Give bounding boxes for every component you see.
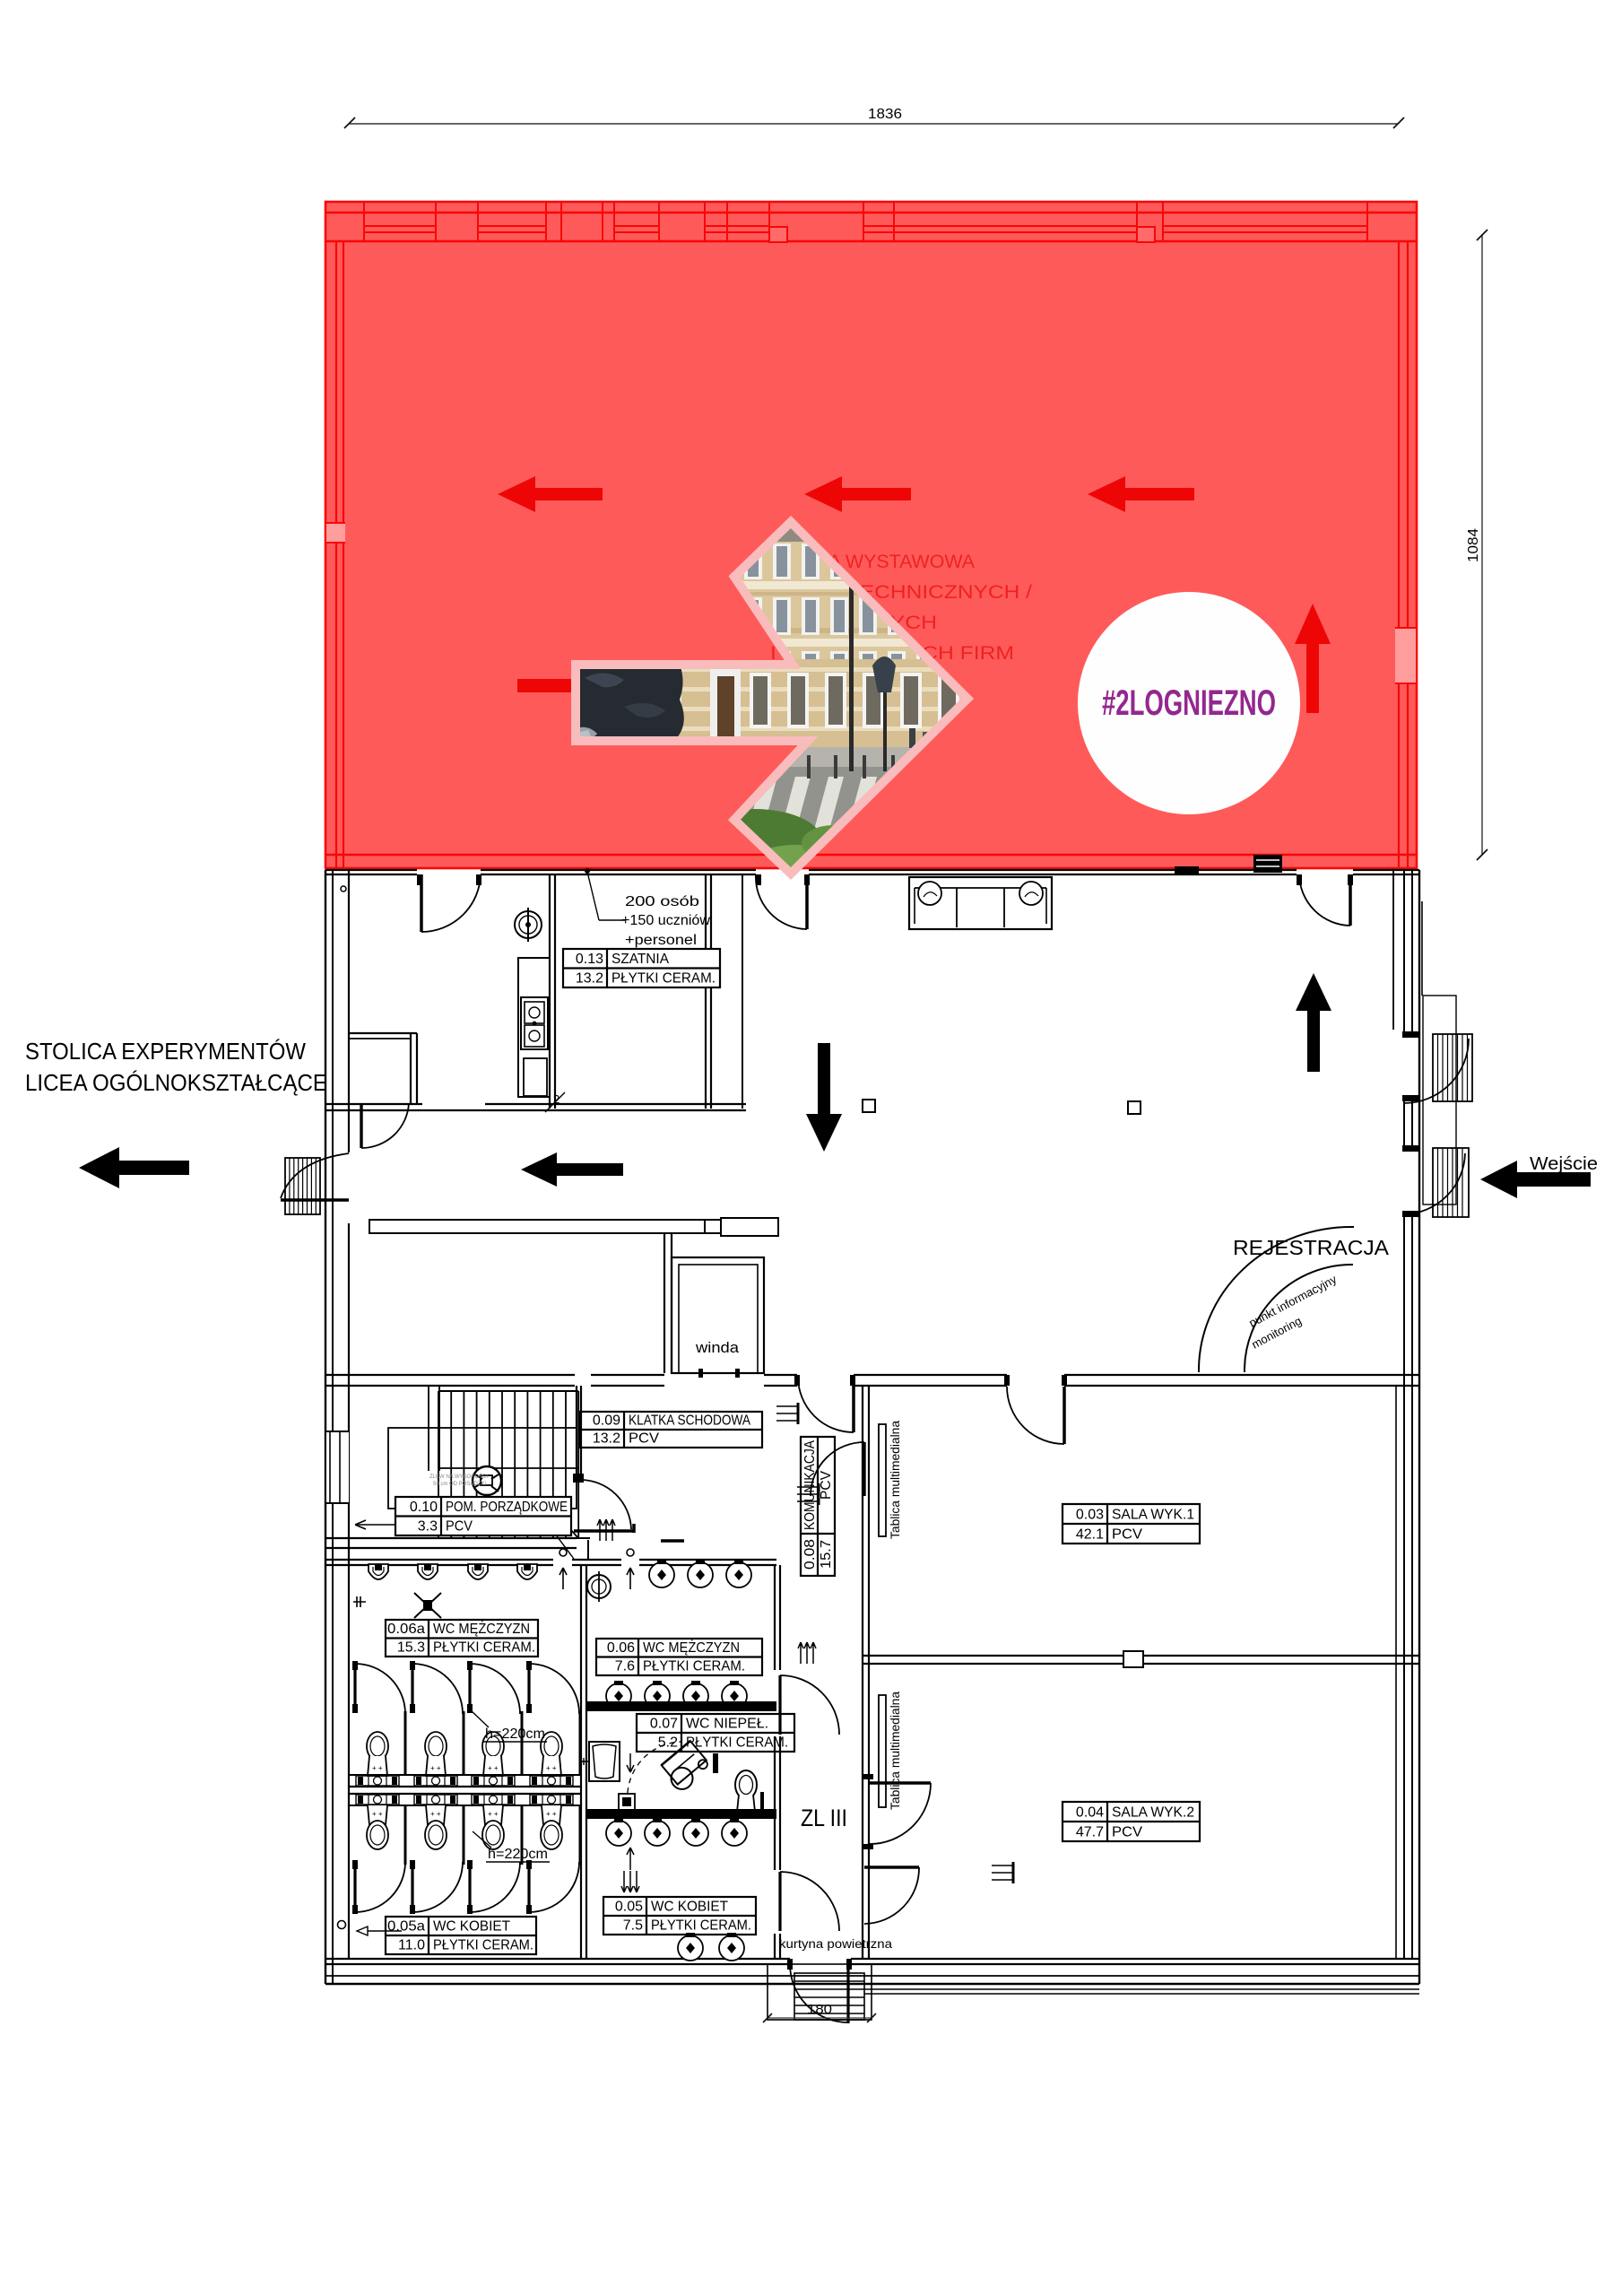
svg-text:5.2: 5.2 — [658, 1735, 678, 1751]
svg-text:7.5: 7.5 — [623, 1918, 643, 1934]
svg-text:PŁYTKI CERAM.: PŁYTKI CERAM. — [612, 971, 716, 987]
svg-text:13.2: 13.2 — [576, 971, 603, 987]
svg-text:h=220cm: h=220cm — [488, 1847, 548, 1862]
svg-text:WC KOBIET: WC KOBIET — [651, 1900, 728, 1915]
svg-text:0.06a: 0.06a — [387, 1622, 425, 1637]
svg-text:+150 uczniów: +150 uczniów — [621, 913, 711, 928]
svg-text:+ +: + + — [372, 1764, 383, 1772]
svg-text:0.06: 0.06 — [607, 1640, 635, 1656]
svg-text:#2LOGNIEZNO: #2LOGNIEZNO — [1102, 683, 1276, 723]
svg-text:0.04: 0.04 — [1076, 1805, 1104, 1821]
svg-text:+ +: + + — [372, 1810, 383, 1818]
svg-text:47.7: 47.7 — [1076, 1825, 1104, 1840]
svg-text:WC MĘŻCZYZN: WC MĘŻCZYZN — [433, 1620, 530, 1637]
svg-text:0.07: 0.07 — [650, 1717, 678, 1732]
svg-text:kurtyna powietrzna: kurtyna powietrzna — [779, 1937, 893, 1951]
svg-text:WC MĘŻCZYZN: WC MĘŻCZYZN — [643, 1639, 740, 1656]
svg-text:0.05a: 0.05a — [387, 1919, 425, 1935]
svg-text:PŁYTKI CERAM.: PŁYTKI CERAM. — [433, 1640, 535, 1656]
svg-text:7.6: 7.6 — [615, 1659, 635, 1674]
svg-text:SALA WYK.1: SALA WYK.1 — [1112, 1508, 1194, 1523]
svg-text:+ +: + + — [488, 1810, 499, 1818]
svg-text:KLATKA SCHODOWA: KLATKA SCHODOWA — [629, 1413, 750, 1429]
svg-text:11.0: 11.0 — [398, 1938, 425, 1953]
svg-text:0.13: 0.13 — [576, 952, 603, 967]
svg-text:15.7: 15.7 — [819, 1540, 834, 1569]
svg-text:0.08: 0.08 — [802, 1539, 818, 1570]
svg-text:0.09: 0.09 — [593, 1413, 620, 1429]
svg-text:200 osób: 200 osób — [625, 894, 699, 909]
svg-text:+ +: + + — [546, 1764, 557, 1772]
svg-text:LICEA OGÓLNOKSZTAŁCĄCE: LICEA OGÓLNOKSZTAŁCĄCE — [25, 1069, 327, 1096]
svg-text:0.03: 0.03 — [1076, 1508, 1104, 1523]
svg-text:1084: 1084 — [1466, 528, 1481, 562]
svg-text:WC KOBIET: WC KOBIET — [433, 1919, 510, 1935]
svg-text:0.05: 0.05 — [615, 1900, 643, 1915]
svg-text:3.3: 3.3 — [418, 1519, 438, 1535]
svg-text:1836: 1836 — [868, 107, 902, 122]
svg-text:+ +: + + — [546, 1810, 557, 1818]
svg-text:KOMUNIKACJA: KOMUNIKACJA — [802, 1439, 818, 1530]
svg-text:+ +: + + — [430, 1810, 441, 1818]
svg-text:+ +: + + — [430, 1764, 441, 1772]
svg-text:PCV: PCV — [1112, 1527, 1142, 1543]
svg-text:ZL III: ZL III — [801, 1805, 847, 1831]
svg-text:15.3: 15.3 — [397, 1640, 425, 1656]
svg-text:PŁYTKI CERAM.: PŁYTKI CERAM. — [433, 1938, 533, 1953]
svg-text:h=220cm: h=220cm — [485, 1726, 545, 1742]
svg-text:Tablica multimedialna: Tablica multimedialna — [889, 1691, 902, 1810]
svg-text:180: 180 — [807, 2002, 832, 2017]
svg-text:STOLICA EXPERYMENTÓW: STOLICA EXPERYMENTÓW — [25, 1038, 306, 1065]
svg-text:WC NIEPEŁ.: WC NIEPEŁ. — [686, 1717, 768, 1732]
svg-text:SZATNIA: SZATNIA — [612, 952, 669, 967]
svg-text:+personel: +personel — [625, 933, 697, 948]
svg-text:SALA WYK.2: SALA WYK.2 — [1112, 1805, 1194, 1821]
svg-text:PŁYTKI CERAM.: PŁYTKI CERAM. — [686, 1735, 788, 1751]
svg-text:0.10: 0.10 — [410, 1500, 438, 1515]
svg-text:PŁYTKI CERAM.: PŁYTKI CERAM. — [643, 1659, 745, 1674]
svg-text:POM. PORZĄDKOWE: POM. PORZĄDKOWE — [446, 1500, 568, 1515]
svg-text:winda: winda — [695, 1340, 740, 1356]
svg-text:REJESTRACJA: REJESTRACJA — [1233, 1236, 1389, 1259]
svg-text:PCV: PCV — [1112, 1825, 1142, 1840]
svg-text:Tablica multimedialna: Tablica multimedialna — [889, 1420, 902, 1539]
svg-text:ZLEW NA WYSOKOŚCI: ZLEW NA WYSOKOŚCI — [429, 1473, 488, 1480]
svg-text:PŁYTKI CERAM.: PŁYTKI CERAM. — [651, 1918, 751, 1934]
svg-text:PCV: PCV — [819, 1470, 834, 1500]
svg-text:PCV: PCV — [629, 1431, 659, 1447]
svg-text:13.2: 13.2 — [593, 1431, 620, 1447]
svg-text:50 cm OD POSADZKI: 50 cm OD POSADZKI — [433, 1482, 486, 1487]
svg-text:+ +: + + — [488, 1764, 499, 1772]
svg-text:42.1: 42.1 — [1076, 1527, 1104, 1543]
svg-text:Wejście: Wejście — [1530, 1154, 1598, 1174]
svg-text:PCV: PCV — [446, 1519, 473, 1535]
